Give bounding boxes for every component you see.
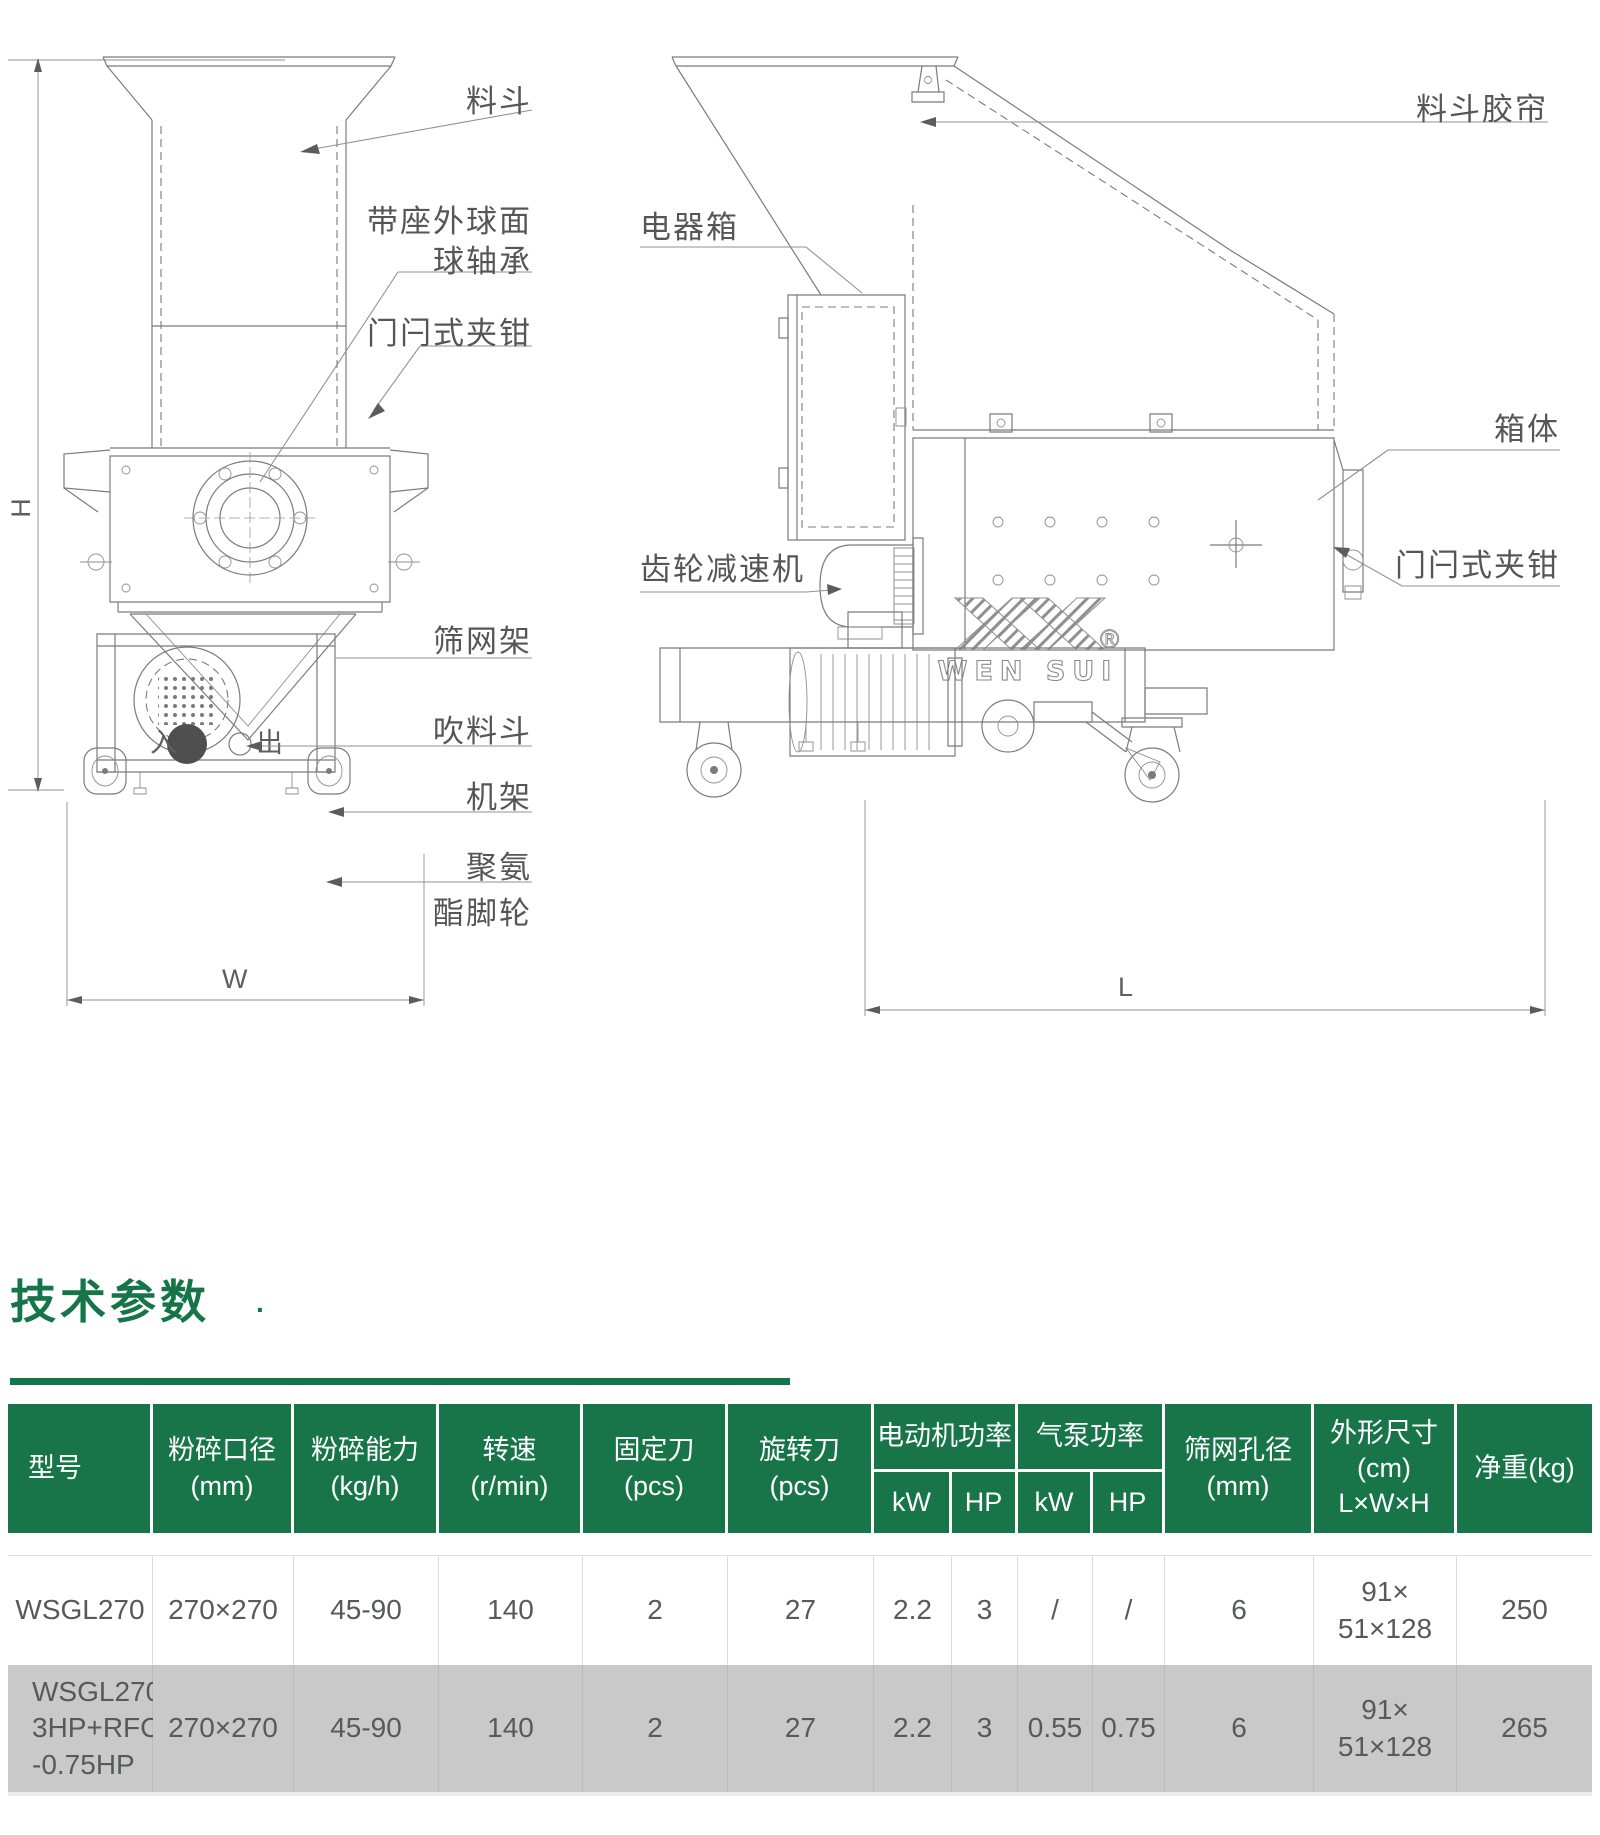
- cell-rotary-blade: 27: [728, 1665, 874, 1792]
- col-header-motor-kw: kW: [874, 1472, 952, 1533]
- cell-capacity: 45-90: [294, 1555, 439, 1665]
- col-header-rotary-blade: 旋转刀 (pcs): [728, 1404, 874, 1533]
- label-hopper-curtain: 料斗胶帘: [1416, 84, 1548, 129]
- cell-net-weight: 265: [1457, 1665, 1592, 1792]
- cell-motor-hp: 3: [952, 1555, 1018, 1665]
- cell-pump-hp: 0.75: [1093, 1665, 1165, 1792]
- col-header-model: 型号: [8, 1404, 153, 1533]
- cell-pump-hp: /: [1093, 1555, 1165, 1665]
- dimension-h-label: H: [6, 498, 36, 518]
- cell-dimensions: 91× 51×128: [1314, 1555, 1457, 1665]
- section-title-text: 技术参数: [10, 1276, 210, 1328]
- cell-speed: 140: [439, 1665, 583, 1792]
- label-electric-box: 电器箱: [640, 202, 739, 247]
- cell-motor-hp: 3: [952, 1665, 1018, 1792]
- col-header-screen-aperture: 筛网孔径 (mm): [1165, 1404, 1314, 1533]
- inlet-mark: 入: [150, 728, 177, 758]
- cell-net-weight: 250: [1457, 1555, 1592, 1665]
- label-screen-frame: 筛网架: [433, 616, 532, 661]
- dimension-l-label: L: [1118, 972, 1133, 1002]
- section-title-dot: .: [256, 1287, 268, 1318]
- spec-table: 型号 粉碎口径 (mm) 粉碎能力 (kg/h) 转速 (r/min) 固定刀 …: [8, 1404, 1592, 1796]
- col-header-speed: 转速 (r/min): [439, 1404, 583, 1533]
- table-header-gap: [8, 1533, 1592, 1555]
- registered-mark-icon: ®: [1100, 624, 1119, 654]
- cell-pump-kw: 0.55: [1018, 1665, 1093, 1792]
- side-view-drawing: WEN SUI ®: [660, 57, 1545, 1016]
- col-header-capacity: 粉碎能力 (kg/h): [294, 1404, 439, 1533]
- label-blow-hopper: 吹料斗: [433, 706, 532, 751]
- machine-technical-drawings: H: [0, 0, 1600, 1030]
- col-header-caliber: 粉碎口径 (mm): [153, 1404, 294, 1533]
- cell-motor-kw: 2.2: [874, 1555, 952, 1665]
- cell-caliber: 270×270: [153, 1555, 294, 1665]
- cell-model: WSGL270: [8, 1555, 153, 1665]
- section-title: 技术参数.: [10, 1266, 268, 1332]
- label-caster-line1: 聚氨: [466, 842, 532, 887]
- label-bearing-line2: 球轴承: [433, 236, 532, 281]
- cell-capacity: 45-90: [294, 1665, 439, 1792]
- label-box-body: 箱体: [1494, 404, 1560, 449]
- col-header-pump-power: 气泵功率: [1018, 1404, 1165, 1472]
- col-header-motor-hp: HP: [952, 1472, 1018, 1533]
- cell-dimensions: 91× 51×128: [1314, 1665, 1457, 1792]
- col-header-net-weight: 净重(kg): [1457, 1404, 1592, 1533]
- label-latch-clamp-side: 门闩式夹钳: [1395, 540, 1560, 585]
- cell-pump-kw: /: [1018, 1555, 1093, 1665]
- col-header-pump-hp: HP: [1093, 1472, 1165, 1533]
- cell-caliber: 270×270: [153, 1665, 294, 1792]
- front-view-drawing: H: [6, 57, 428, 1006]
- label-caster-line2: 酯脚轮: [433, 888, 532, 933]
- wensui-logo-text: WEN SUI: [938, 656, 1119, 687]
- cell-speed: 140: [439, 1555, 583, 1665]
- cell-fixed-blade: 2: [583, 1555, 728, 1665]
- cell-screen-aperture: 6: [1165, 1555, 1314, 1665]
- cell-fixed-blade: 2: [583, 1665, 728, 1792]
- dimension-w-label: W: [222, 964, 248, 994]
- col-header-motor-power: 电动机功率: [874, 1404, 1018, 1472]
- col-header-pump-kw: kW: [1018, 1472, 1093, 1533]
- cell-motor-kw: 2.2: [874, 1665, 952, 1792]
- col-header-dimensions: 外形尺寸 (cm) L×W×H: [1314, 1404, 1457, 1533]
- cell-rotary-blade: 27: [728, 1555, 874, 1665]
- label-machine-frame: 机架: [466, 772, 532, 817]
- label-hopper: 料斗: [466, 76, 532, 121]
- label-bearing-line1: 带座外球面: [367, 196, 532, 241]
- cell-screen-aperture: 6: [1165, 1665, 1314, 1792]
- label-latch-clamp-front: 门闩式夹钳: [367, 308, 532, 353]
- datasheet-page: H: [0, 0, 1600, 1835]
- col-header-fixed-blade: 固定刀 (pcs): [583, 1404, 728, 1533]
- cell-model: WSGL270- 3HP+RFC -0.75HP: [8, 1665, 153, 1792]
- section-title-underline: [10, 1378, 790, 1385]
- label-gear-reducer: 齿轮减速机: [640, 544, 805, 589]
